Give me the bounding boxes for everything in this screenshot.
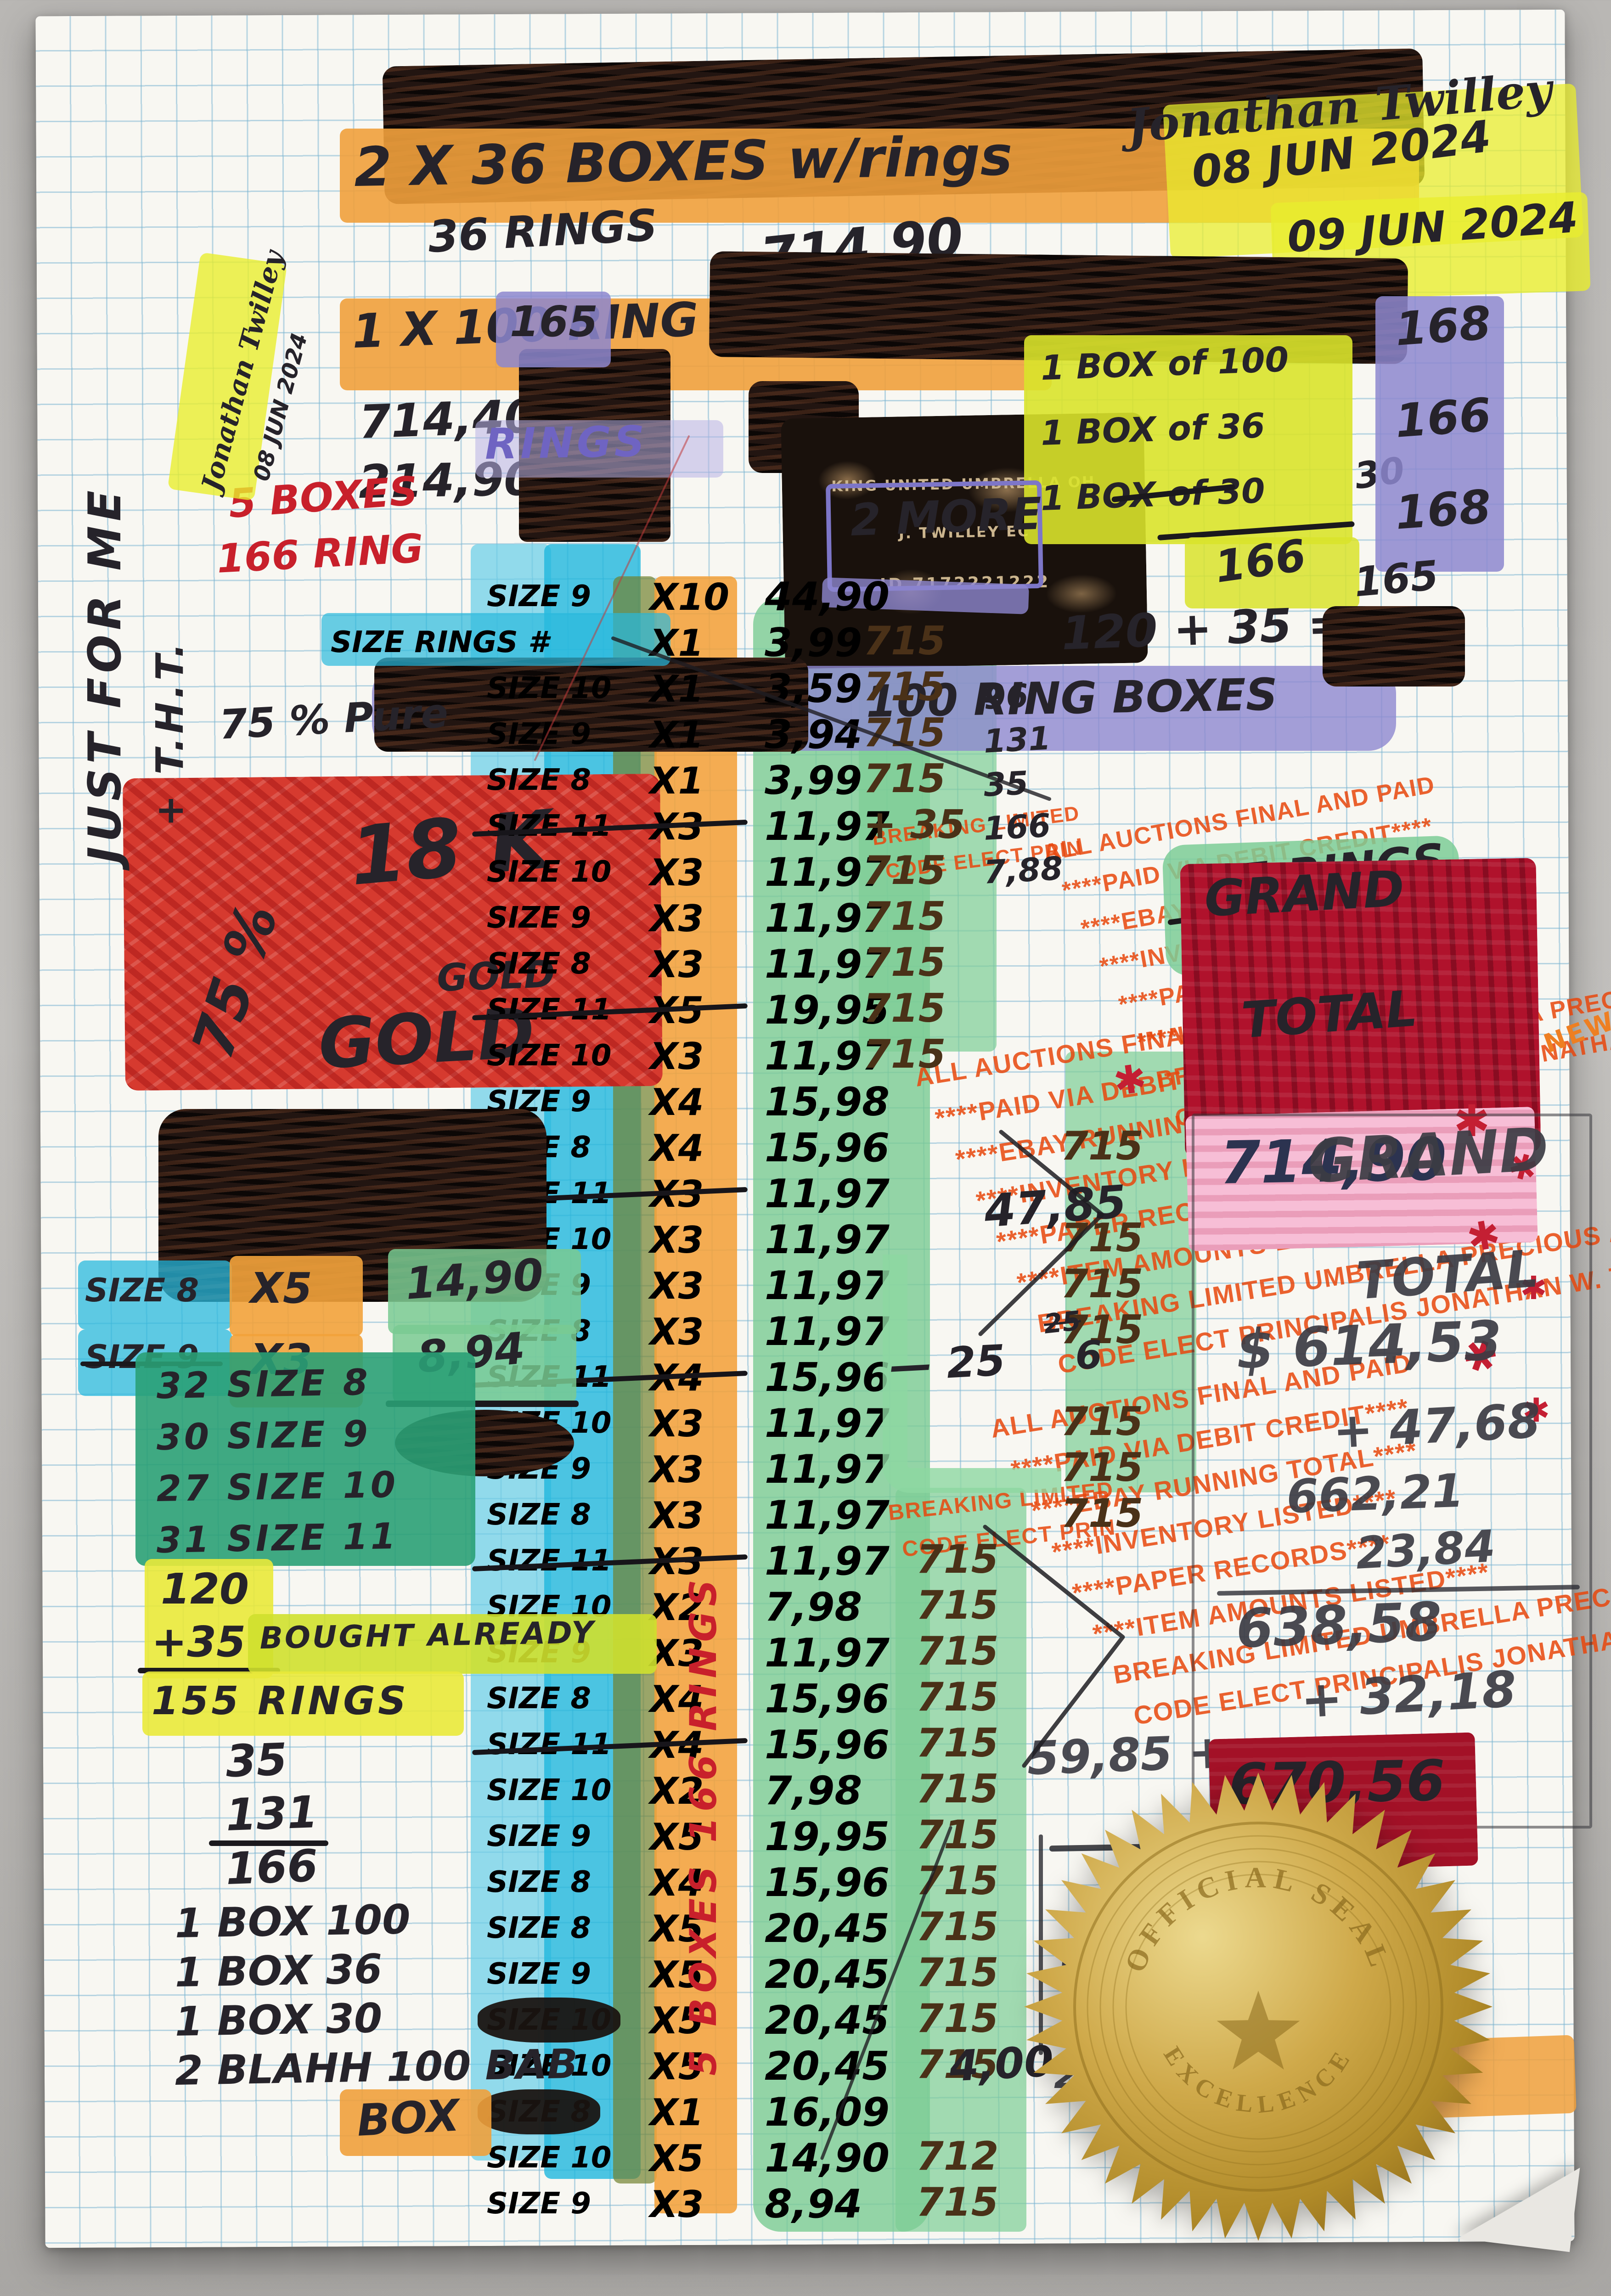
bottom-box-row: 1 BOX 30: [175, 1998, 383, 2042]
ledger-size: SIZE RINGS #: [331, 625, 548, 659]
ledger-qty: X3: [650, 1494, 704, 1537]
purple-165: 165: [510, 301, 598, 343]
left-row1-qty: X5: [250, 1267, 312, 1310]
ledger-price: 15,96: [765, 1860, 890, 1906]
ledger-batch: 715: [916, 1996, 999, 2042]
ledger-qty: X1: [650, 668, 704, 710]
ledger-batch: 715: [916, 1812, 999, 1858]
ledger-price: 15,96: [765, 1355, 890, 1401]
ledger-qty: X4: [650, 1356, 704, 1399]
bottom-sum-value: 166: [225, 1844, 319, 1891]
ledger-batch: + 35: [863, 802, 965, 848]
right-column-value: 168: [1394, 484, 1493, 536]
pencil-add2: + 32,18: [1300, 1665, 1518, 1725]
ledger-qty: X1: [650, 714, 704, 756]
ledger-price: 8,94: [765, 2181, 862, 2227]
header-line2: 36 RINGS: [427, 204, 659, 259]
ledger-price: 11,97: [765, 1492, 890, 1538]
margin-note-1: JUST FOR ME: [83, 486, 128, 863]
ledger-price: 3,99: [765, 758, 862, 804]
ledger-price: 14,90: [765, 2135, 890, 2181]
ledger-qty: X3: [650, 1448, 704, 1491]
ledger-price: 16,09: [765, 2089, 890, 2135]
left-row1-size: SIZE 8: [85, 1274, 199, 1306]
ledger-batch: 715: [1061, 1261, 1143, 1307]
ledger-price: 15,96: [765, 1722, 890, 1768]
ledger-price: 11,97: [765, 1171, 890, 1217]
ledger-batch: 715: [1061, 1399, 1143, 1445]
ledger-batch: 712: [916, 2133, 999, 2179]
ledger-price: 7,98: [765, 1584, 862, 1630]
header-line1: 2 X 36 BOXES w/rings: [354, 129, 1013, 194]
grand-pencil-word2: TOTAL: [1355, 1243, 1540, 1307]
ledger-size: SIZE 9: [487, 2187, 591, 2221]
ledger-qty: X3: [650, 1311, 704, 1353]
yellow-plus-35: +35: [152, 1621, 246, 1663]
ledger-size: SIZE 11: [487, 1728, 611, 1761]
ledger-qty: X3: [650, 851, 704, 894]
bottom-sum-underline: [209, 1840, 328, 1846]
ledger-batch: 715: [863, 756, 946, 802]
ledger-price: 19,95: [765, 1814, 890, 1860]
ledger-size: SIZE 10: [487, 855, 611, 889]
ledger-qty: X3: [650, 1173, 704, 1216]
box-tally-row: 1 BOX of 36: [1040, 409, 1266, 450]
size-count-row: 31 SIZE 11: [156, 1519, 399, 1559]
ledger-qty: X4: [650, 1081, 704, 1124]
red-166-ring: 166 RING: [216, 529, 424, 579]
ledger-qty: X1: [650, 760, 704, 802]
ledger-qty: X5: [650, 2137, 704, 2180]
ledger-price: 3,99: [765, 620, 862, 666]
size-count-row: 27 SIZE 10: [156, 1467, 399, 1507]
ledger-batch: 715: [863, 710, 946, 756]
two-more-text: 2 MORE: [850, 491, 1042, 542]
ledger-qty: X5: [650, 989, 704, 1032]
ledger-size: SIZE 9: [487, 901, 591, 935]
ledger-price: 15,96: [765, 1125, 890, 1171]
ledger-batch: 715: [863, 985, 946, 1031]
ledger-qty: X3: [650, 1265, 704, 1307]
purple-rings: RINGS: [484, 421, 648, 466]
pointer-47-85: 47,85: [983, 1179, 1128, 1234]
ledger-price: 15,96: [765, 1676, 890, 1722]
ledger-price: 44,90: [765, 574, 890, 620]
ledger-batch: 715: [916, 1582, 999, 1628]
grand-pencil-word1: GRAND: [1307, 1120, 1550, 1192]
ledger-size: SIZE 8: [487, 947, 591, 981]
ledger-price: 11,97: [765, 1401, 890, 1446]
ledger-size: SIZE 8: [487, 1911, 591, 1945]
ledger-batch: 715: [916, 1904, 999, 1950]
ledger-qty: X1: [650, 2091, 704, 2134]
ledger-price: 20,45: [765, 1998, 890, 2043]
ledger-price: 3,59: [765, 666, 862, 712]
bought-already: BOUGHT ALREADY: [259, 1617, 596, 1654]
left-row1-price: 14,90: [404, 1253, 545, 1306]
ledger-size: SIZE 9: [487, 1819, 591, 1853]
ledger-batch: 715: [916, 1536, 999, 1582]
bottom-box-row: 1 BOX 36: [175, 1949, 383, 1993]
box-word: BOX: [356, 2094, 461, 2143]
ledger-row: SIZE RINGS # X1 3,99 715: [468, 619, 1571, 665]
ledger-qty: X3: [650, 943, 704, 986]
pencil-add: + 47,68: [1332, 1396, 1542, 1455]
ledger-row: SIZE 10 X1 3,59 715: [468, 665, 1571, 711]
ledger-qty: X3: [650, 1219, 704, 1261]
yellow-120: 120: [161, 1568, 249, 1610]
ledger-price: 15,98: [765, 1079, 890, 1125]
ledger-qty: X10: [650, 576, 729, 619]
ledger-price: 11,97: [765, 1446, 890, 1492]
red-vertical-note: 5 BOXES 166 RINGS: [685, 1574, 722, 2076]
ledger-qty: X3: [650, 2183, 704, 2226]
bottom-sum-value: 35: [225, 1737, 288, 1784]
ledger-size: SIZE 10: [487, 1039, 611, 1073]
ledger-price: 11,97: [765, 1630, 890, 1676]
ledger-batch: 715: [916, 1950, 999, 1996]
ledger-qty: X1: [650, 622, 704, 664]
size-count-row: 32 SIZE 8: [156, 1365, 371, 1404]
ledger-batch: 715: [863, 848, 946, 894]
ledger-batch: 715: [1061, 1491, 1143, 1536]
ledger-batch: 715: [863, 664, 946, 710]
gold-seal: OFFICIAL SEALEXCELLENCE: [1022, 1770, 1495, 2243]
ledger-size: SIZE 11: [487, 993, 611, 1027]
red-star-7: ✱: [1111, 1058, 1149, 1102]
ledger-size: SIZE 11: [487, 809, 611, 843]
ledger-qty: X3: [650, 1035, 704, 1078]
ledger-row: SIZE 9 X1 3,94 715: [468, 711, 1571, 757]
ledger-batch: 715: [916, 2179, 999, 2225]
box-tally-row: 1 BOX of 100: [1040, 343, 1289, 385]
pencil-subtotal: 662,21: [1286, 1468, 1465, 1520]
ledger-price: 7,98: [765, 1768, 862, 1814]
ledger-size: SIZE 8: [487, 2095, 591, 2129]
ledger-size: SIZE 8: [487, 1682, 591, 1716]
ledger-row: SIZE 11 X3 11,97 + 35: [468, 803, 1571, 849]
ledger-size: SIZE 8: [487, 763, 591, 797]
ledger-qty: X3: [650, 805, 704, 848]
bottom-sum-value: 131: [225, 1790, 319, 1837]
ledger-batch: 715: [916, 1674, 999, 1720]
ledger-row: SIZE 8 X1 3,99 715: [468, 757, 1571, 803]
ledger-size: SIZE 9: [487, 1957, 591, 1991]
ledger-price: 20,45: [765, 2043, 890, 2089]
right-column-value: 168: [1394, 300, 1493, 352]
ledger-qty: X4: [650, 1127, 704, 1170]
bottom-box-row: 1 BOX 100: [175, 1899, 411, 1944]
bottom-box-row: 2 BLAHH 100 BAB: [175, 2044, 578, 2091]
ledger-qty: X3: [650, 897, 704, 940]
ledger-batch: 715: [863, 894, 946, 940]
ledger-batch: 715: [916, 1858, 999, 1904]
grand-red-word1: GRAND: [1203, 864, 1405, 924]
ledger-price: 11,97: [765, 1217, 890, 1263]
grand-red-word2: TOTAL: [1240, 984, 1419, 1046]
right-column-value: 166: [1394, 392, 1493, 444]
ledger-batch: 715: [916, 1720, 999, 1766]
ledger-price: 20,45: [765, 1906, 890, 1952]
ledger-batch: 715: [863, 1031, 946, 1077]
ledger-price: 3,94: [765, 712, 862, 758]
ledger-size: SIZE 10: [487, 1773, 611, 1807]
ledger-size: SIZE 10: [487, 2003, 611, 2037]
paper-corner-curl: [1458, 2154, 1580, 2252]
size-count-row: 30 SIZE 9: [156, 1416, 371, 1456]
ledger-size: SIZE 10: [487, 671, 611, 705]
pencil-result1: 638,58: [1235, 1595, 1442, 1656]
ledger-size: SIZE 8: [487, 1865, 591, 1899]
ledger-batch: 715: [1061, 1123, 1143, 1169]
margin-note-2: + T.H.T.: [152, 640, 189, 827]
fix-new-6: 6: [1075, 1335, 1103, 1375]
minus-25: — 25: [889, 1339, 1007, 1388]
ledger-batch: 715: [863, 618, 946, 664]
ledger-row: SIZE 9 X10 44,90: [468, 573, 1571, 619]
ledger-size: SIZE 8: [487, 1498, 591, 1532]
ledger-batch: 715: [916, 1628, 999, 1674]
pencil-amount: $ 614,53: [1235, 1313, 1503, 1377]
ledger-size: SIZE 9: [487, 717, 591, 751]
ledger-size: SIZE 9: [487, 580, 591, 613]
rings-155: 155 RINGS: [152, 1682, 409, 1721]
ledger-price: 20,45: [765, 1952, 890, 1998]
ledger-size: SIZE 11: [487, 1544, 611, 1578]
ledger-batch: 715: [916, 1766, 999, 1812]
ledger-price: 11,97: [765, 1263, 890, 1309]
ledger-qty: X3: [650, 1402, 704, 1445]
pencil-minus: 23,84: [1355, 1524, 1496, 1576]
ledger-price: 11,97: [765, 1309, 890, 1355]
ledger-batch: 715: [863, 940, 946, 985]
ledger-batch: 715: [1061, 1445, 1143, 1491]
ledger-size: SIZE 10: [487, 2141, 611, 2175]
gold-heading: 75 % Pure: [218, 693, 449, 745]
ledger-price: 11,97: [765, 1538, 890, 1584]
